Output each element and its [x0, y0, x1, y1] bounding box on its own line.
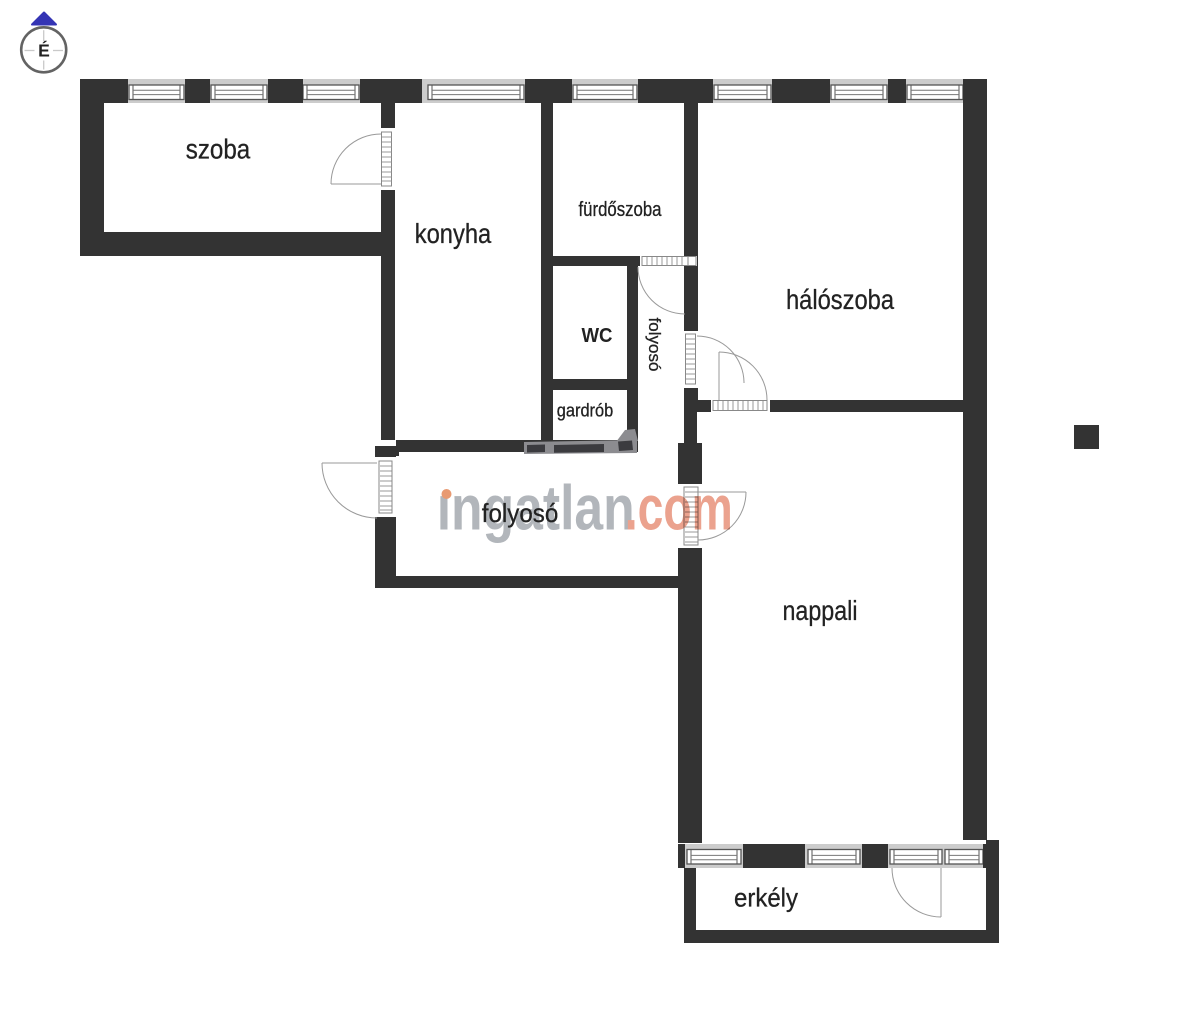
svg-text:.com: .com [625, 473, 733, 544]
svg-text:konyha: konyha [415, 218, 492, 249]
svg-text:gardrób: gardrób [557, 401, 614, 421]
svg-text:erkély: erkély [734, 883, 798, 913]
svg-text:szoba: szoba [186, 134, 251, 165]
svg-text:É: É [38, 40, 50, 61]
svg-text:nappali: nappali [783, 595, 858, 626]
svg-text:fürdőszoba: fürdőszoba [579, 199, 663, 221]
svg-text:folyosó: folyosó [645, 318, 664, 372]
svg-text:WC: WC [582, 325, 613, 347]
svg-text:hálószoba: hálószoba [786, 284, 894, 315]
svg-text:folyosó: folyosó [482, 498, 559, 528]
